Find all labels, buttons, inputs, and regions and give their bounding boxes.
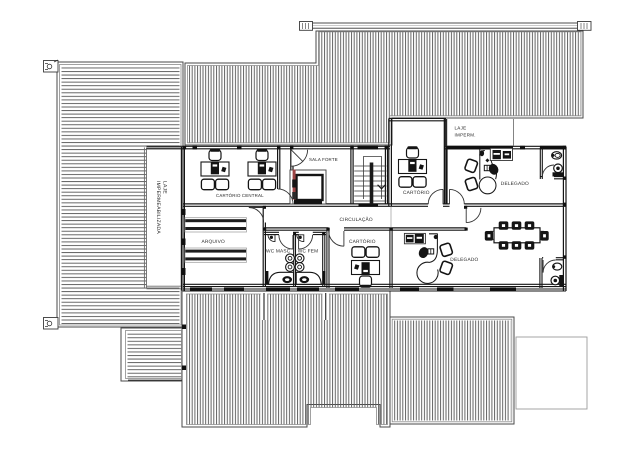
- svg-text:LAJE: LAJE: [455, 125, 467, 130]
- svg-text:CIRCULAÇÃO: CIRCULAÇÃO: [340, 216, 373, 223]
- svg-text:DELEGADO: DELEGADO: [501, 181, 529, 187]
- svg-text:WC MASC: WC MASC: [266, 248, 291, 254]
- svg-text:ARQUIVO: ARQUIVO: [202, 239, 225, 245]
- svg-text:IMPERM.: IMPERM.: [455, 132, 476, 137]
- svg-text:LAJE: LAJE: [161, 181, 167, 194]
- svg-text:WC FEM: WC FEM: [298, 248, 319, 254]
- svg-text:CARTÓRIO: CARTÓRIO: [349, 238, 376, 245]
- svg-text:CARTÓRIO: CARTÓRIO: [403, 189, 430, 196]
- svg-text:IMPERMEABILIZADA: IMPERMEABILIZADA: [155, 181, 161, 234]
- svg-text:CARTÓRIO CENTRAL: CARTÓRIO CENTRAL: [216, 193, 264, 198]
- svg-text:SALA FORTE: SALA FORTE: [309, 157, 338, 162]
- svg-text:DELEGADO: DELEGADO: [450, 257, 478, 263]
